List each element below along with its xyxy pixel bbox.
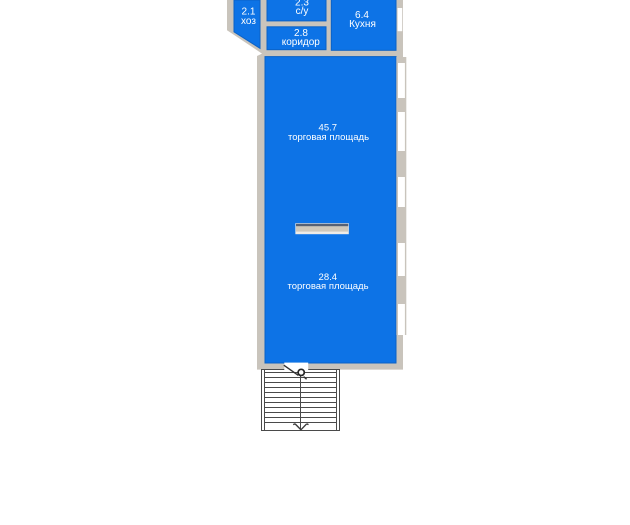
svg-text:хоз: хоз	[241, 16, 256, 27]
svg-text:коридор: коридор	[282, 37, 321, 48]
svg-text:с/у: с/у	[296, 6, 309, 17]
svg-text:торговая площадь: торговая площадь	[287, 281, 368, 292]
svg-text:Кухня: Кухня	[349, 19, 376, 30]
svg-text:торговая площадь: торговая площадь	[288, 132, 369, 143]
